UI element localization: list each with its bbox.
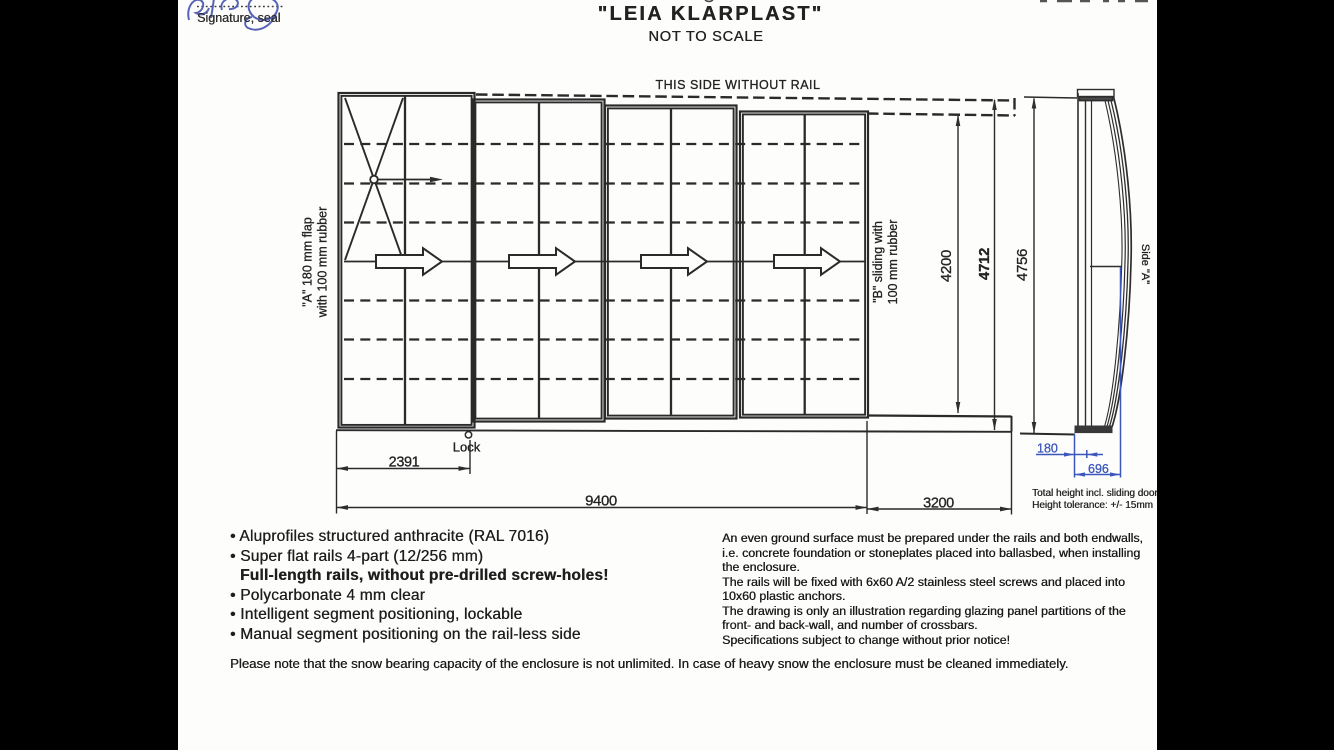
svg-text:2391: 2391 [389,455,420,471]
svg-text:9400: 9400 [585,493,617,510]
svg-text:4756: 4756 [1014,249,1031,281]
svg-text:Side "A": Side "A" [1139,244,1151,284]
svg-text:4712: 4712 [976,248,993,280]
svg-text:100 mm rubber: 100 mm rubber [886,220,900,305]
svg-text:with 100 mm rubber: with 100 mm rubber [316,207,330,318]
svg-text:THIS SIDE WITHOUT RAIL: THIS SIDE WITHOUT RAIL [656,78,821,92]
svg-text:"A" 180 mm flap: "A" 180 mm flap [301,217,315,307]
svg-text:180: 180 [1037,442,1058,456]
svg-text:Lock: Lock [453,440,481,455]
svg-text:3200: 3200 [923,496,954,512]
svg-text:696: 696 [1088,462,1109,476]
svg-text:4200: 4200 [938,250,955,282]
svg-text:"B" sliding with: "B" sliding with [871,221,885,303]
